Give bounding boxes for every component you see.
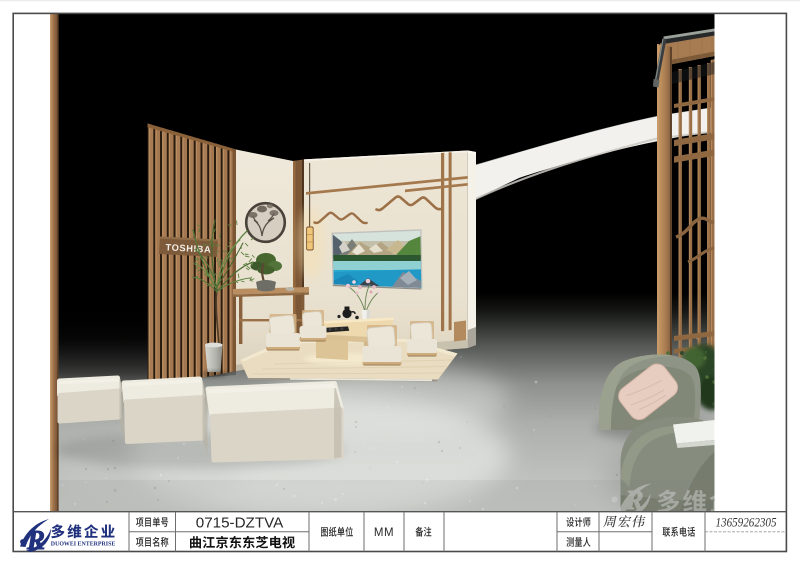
svg-text:R: R bbox=[26, 525, 45, 555]
svg-text:MM: MM bbox=[374, 527, 394, 539]
svg-text:R: R bbox=[625, 485, 644, 515]
svg-text:DUOWEI ENTERPRISE: DUOWEI ENTERPRISE bbox=[51, 540, 116, 547]
svg-text:13659262305: 13659262305 bbox=[716, 514, 777, 529]
svg-text:0715-DZTVA: 0715-DZTVA bbox=[196, 515, 284, 532]
